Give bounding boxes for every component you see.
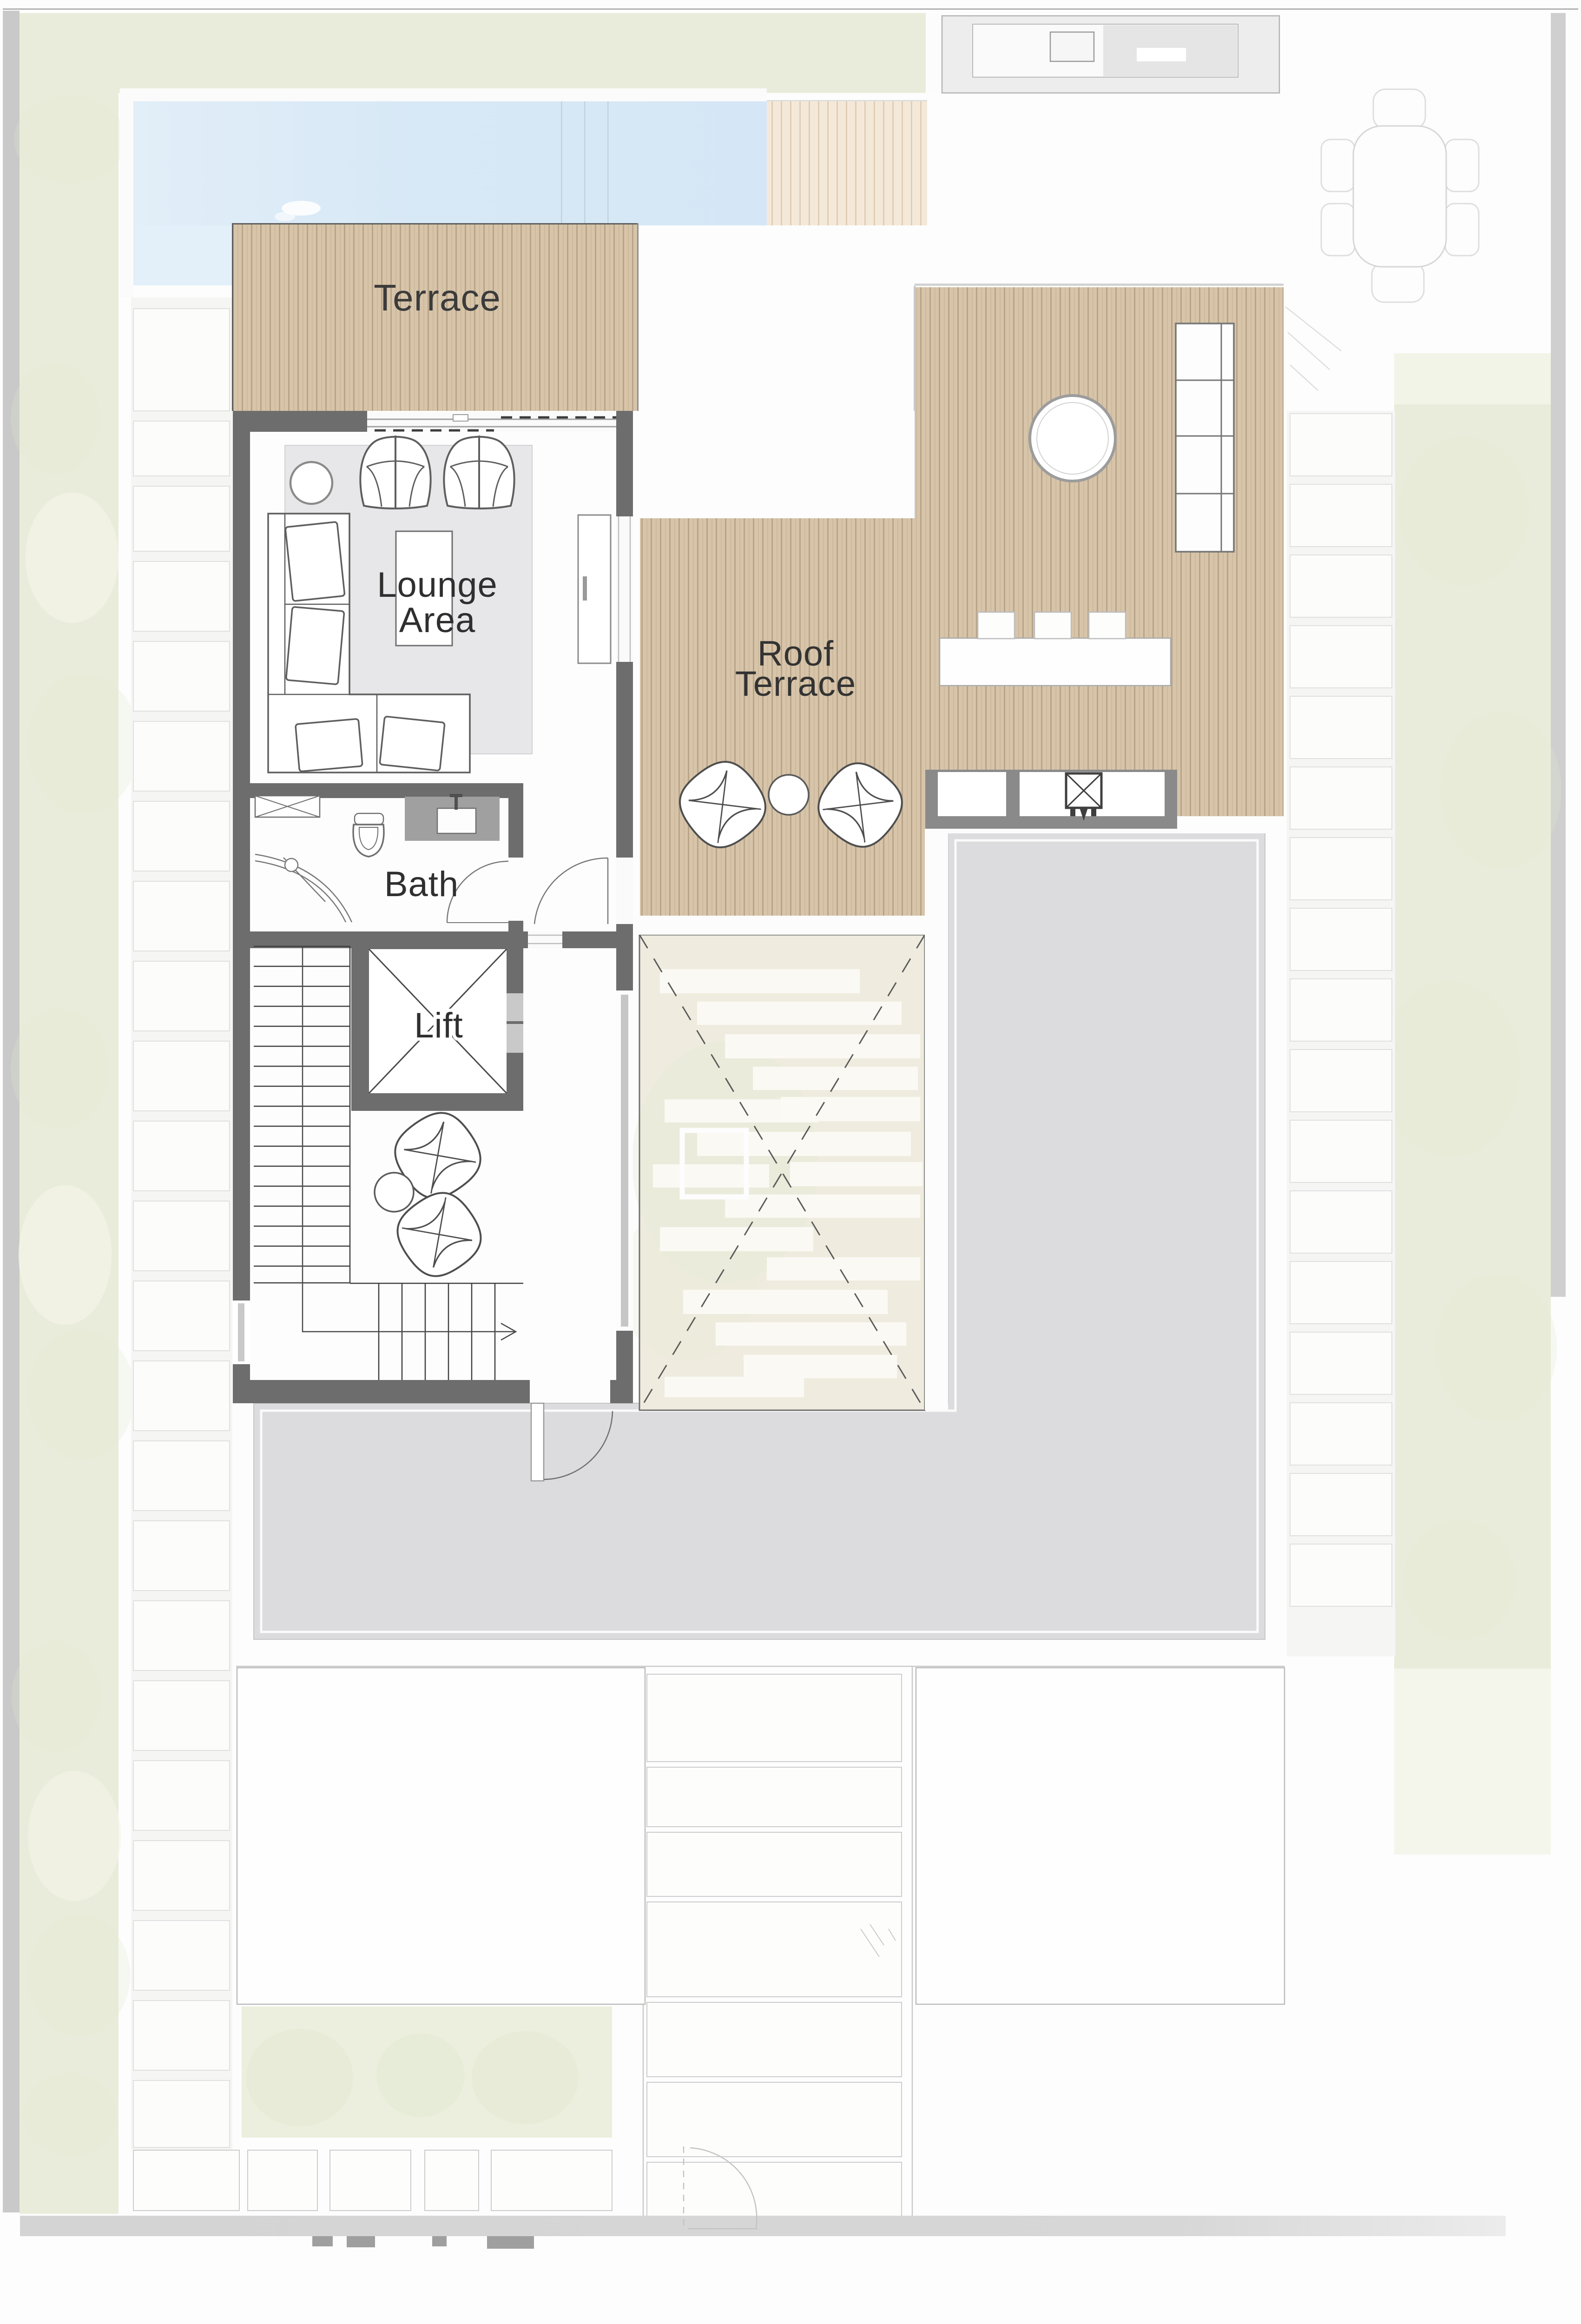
svg-text:Lift: Lift xyxy=(414,1006,463,1045)
svg-text:Terrace: Terrace xyxy=(735,664,856,704)
svg-text:Terrace: Terrace xyxy=(374,277,501,318)
svg-text:Bath: Bath xyxy=(384,865,459,904)
svg-text:Lounge: Lounge xyxy=(377,565,498,605)
svg-text:Area: Area xyxy=(399,601,476,640)
